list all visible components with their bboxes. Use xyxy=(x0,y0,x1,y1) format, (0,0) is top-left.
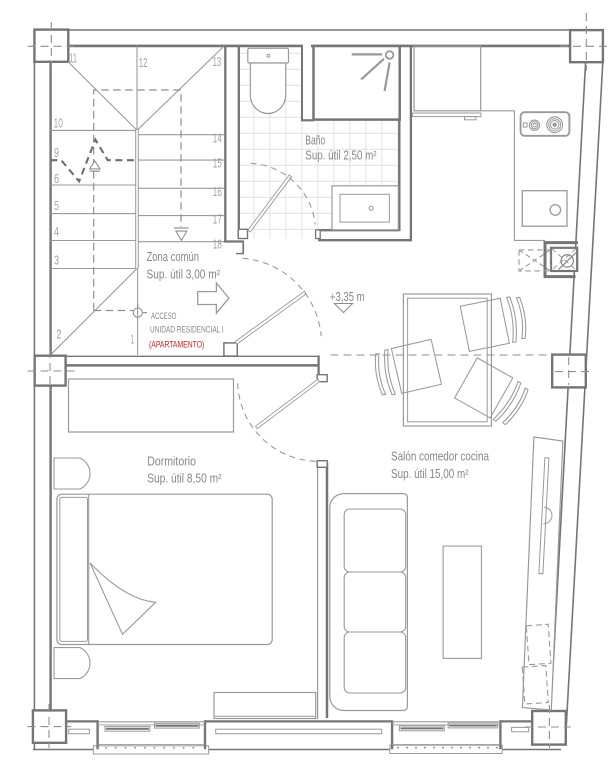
svg-text:6: 6 xyxy=(54,171,59,186)
svg-text:17: 17 xyxy=(213,212,222,227)
svg-text:Dormitorio: Dormitorio xyxy=(147,454,196,469)
svg-text:+3,35 m: +3,35 m xyxy=(330,289,365,304)
svg-text:3: 3 xyxy=(54,252,59,267)
svg-text:12: 12 xyxy=(139,55,148,70)
svg-text:Sup. útil 15,00 m²: Sup. útil 15,00 m² xyxy=(391,466,469,481)
svg-text:Zona común: Zona común xyxy=(147,249,200,264)
svg-text:5: 5 xyxy=(54,198,59,213)
svg-text:(APARTAMENTO): (APARTAMENTO) xyxy=(149,340,204,351)
svg-text:UNIDAD RESIDENCIAL I: UNIDAD RESIDENCIAL I xyxy=(150,324,224,335)
svg-text:14: 14 xyxy=(213,130,222,145)
svg-text:15: 15 xyxy=(213,156,222,171)
svg-text:2: 2 xyxy=(57,327,62,342)
svg-text:11: 11 xyxy=(69,50,77,65)
svg-text:Baño: Baño xyxy=(305,133,325,148)
svg-text:Sup. útil 3,00 m²: Sup. útil 3,00 m² xyxy=(147,267,221,282)
svg-text:9: 9 xyxy=(54,145,59,160)
svg-text:10: 10 xyxy=(54,116,63,131)
svg-text:1: 1 xyxy=(131,332,134,347)
svg-text:Sup. útil 8,50 m²: Sup. útil 8,50 m² xyxy=(147,471,222,486)
svg-text:Salón comedor cocina: Salón comedor cocina xyxy=(391,448,490,463)
svg-text:18: 18 xyxy=(213,237,222,252)
svg-text:Sup. útil 2,50 m²: Sup. útil 2,50 m² xyxy=(305,148,377,163)
svg-text:4: 4 xyxy=(54,224,59,239)
svg-text:ACCESO: ACCESO xyxy=(151,311,176,322)
svg-text:16: 16 xyxy=(213,184,222,199)
svg-text:13: 13 xyxy=(213,54,222,69)
